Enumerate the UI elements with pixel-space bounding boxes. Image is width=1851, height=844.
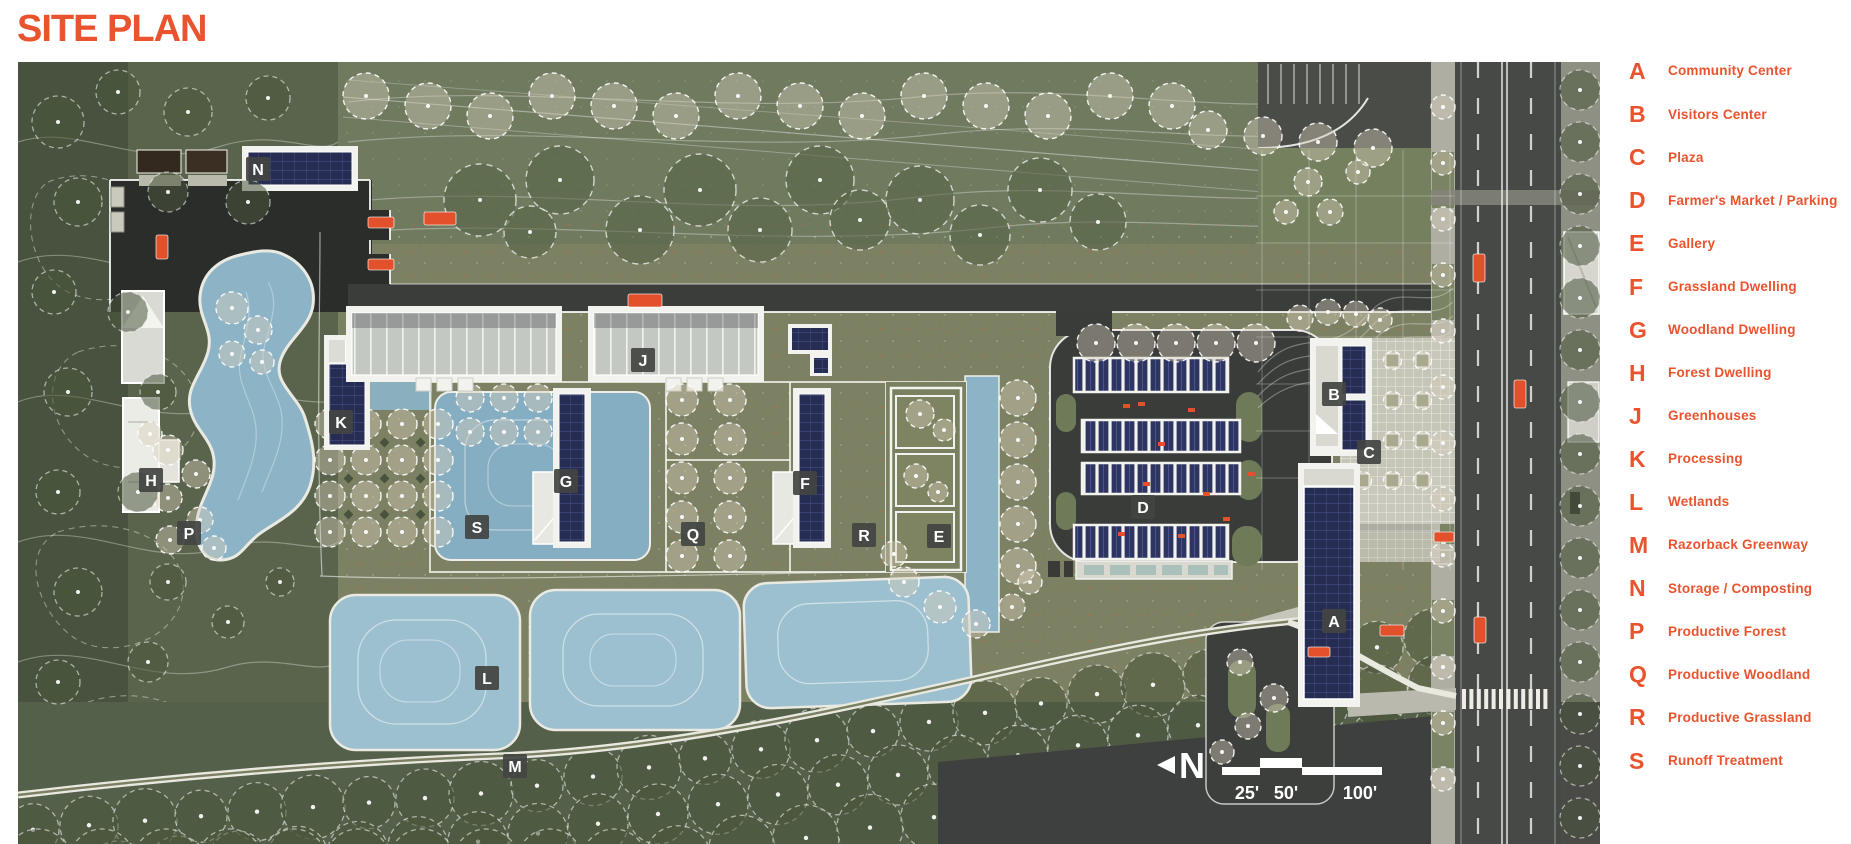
compost-bin: [137, 150, 181, 173]
svg-text:A: A: [1328, 614, 1340, 631]
legend-item-E: EGallery: [1629, 222, 1847, 265]
legend-item-S: SRunoff Treatment: [1629, 740, 1847, 783]
legend-key: Q: [1629, 661, 1668, 688]
compost-bin: [186, 150, 227, 173]
legend-key: K: [1629, 446, 1668, 473]
legend-item-A: ACommunity Center: [1629, 50, 1847, 93]
svg-text:Q: Q: [687, 527, 699, 544]
scale-bar-segment: [1302, 767, 1382, 775]
legend-key: P: [1629, 618, 1668, 645]
legend-item-K: KProcessing: [1629, 438, 1847, 481]
car: [1474, 617, 1486, 643]
legend-label: Storage / Composting: [1668, 582, 1812, 596]
svg-text:B: B: [1328, 387, 1340, 404]
car: [424, 212, 456, 225]
svg-text:P: P: [184, 526, 195, 543]
car: [1473, 254, 1485, 282]
legend-label: Woodland Dwelling: [1668, 323, 1796, 337]
legend-item-B: BVisitors Center: [1629, 93, 1847, 136]
car: [1514, 380, 1526, 408]
legend-item-N: NStorage / Composting: [1629, 567, 1847, 610]
map-label-E: E: [927, 524, 951, 548]
map-label-F: F: [793, 471, 817, 495]
compost-pad: [188, 175, 227, 186]
map-label-D: D: [1131, 495, 1155, 519]
legend-item-Q: QProductive Woodland: [1629, 653, 1847, 696]
map-label-P: P: [177, 521, 201, 545]
legend-item-M: MRazorback Greenway: [1629, 524, 1847, 567]
legend-label: Productive Woodland: [1668, 668, 1810, 682]
scale-bar-segment: [1222, 767, 1260, 775]
legend-item-L: LWetlands: [1629, 481, 1847, 524]
map-label-H: H: [139, 468, 163, 492]
scale-label: 100': [1343, 783, 1377, 803]
svg-text:F: F: [800, 476, 810, 493]
svg-text:H: H: [145, 473, 157, 490]
svg-text:N: N: [252, 162, 264, 179]
map-label-R: R: [852, 523, 876, 547]
map-label-S: S: [465, 515, 489, 539]
scale-label: 25': [1235, 783, 1259, 803]
svg-text:S: S: [472, 520, 483, 537]
legend-label: Plaza: [1668, 151, 1704, 165]
map-label-B: B: [1322, 382, 1346, 406]
legend-key: C: [1629, 144, 1668, 171]
page-title: SITE PLAN: [17, 8, 206, 51]
legend-key: M: [1629, 532, 1668, 559]
legend-item-C: CPlaza: [1629, 136, 1847, 179]
site-plan-map: NKHPJSGQFREDBCALM N25'50'100': [18, 62, 1600, 844]
legend-label: Productive Grassland: [1668, 711, 1812, 725]
car: [1434, 532, 1454, 542]
car: [368, 259, 394, 270]
car: [1380, 625, 1404, 636]
legend-key: L: [1629, 489, 1668, 516]
legend-label: Grassland Dwelling: [1668, 280, 1797, 294]
north-label: N: [1179, 745, 1205, 786]
car: [628, 294, 662, 307]
legend-item-D: DFarmer's Market / Parking: [1629, 179, 1847, 222]
legend-item-G: GWoodland Dwelling: [1629, 309, 1847, 352]
shed: [111, 187, 124, 207]
legend-label: Visitors Center: [1668, 108, 1767, 122]
legend-key: E: [1629, 230, 1668, 257]
svg-text:C: C: [1363, 445, 1375, 462]
legend: ACommunity CenterBVisitors CenterCPlazaD…: [1629, 50, 1847, 783]
car: [156, 235, 168, 259]
map-label-K: K: [329, 410, 353, 434]
legend-item-H: HForest Dwelling: [1629, 352, 1847, 395]
shed: [111, 212, 124, 232]
legend-key: B: [1629, 101, 1668, 128]
legend-key: H: [1629, 360, 1668, 387]
legend-key: J: [1629, 403, 1668, 430]
legend-key: F: [1629, 274, 1668, 301]
legend-label: Greenhouses: [1668, 409, 1756, 423]
site-map-svg: NKHPJSGQFREDBCALM N25'50'100': [18, 62, 1600, 844]
legend-label: Razorback Greenway: [1668, 538, 1808, 552]
svg-text:D: D: [1137, 500, 1149, 517]
legend-label: Productive Forest: [1668, 625, 1786, 639]
legend-label: Wetlands: [1668, 495, 1729, 509]
legend-label: Forest Dwelling: [1668, 366, 1772, 380]
map-label-C: C: [1357, 440, 1381, 464]
car: [368, 217, 394, 228]
svg-text:R: R: [858, 528, 870, 545]
legend-label: Community Center: [1668, 64, 1792, 78]
legend-label: Gallery: [1668, 237, 1715, 251]
legend-item-J: JGreenhouses: [1629, 395, 1847, 438]
svg-text:J: J: [639, 353, 648, 370]
svg-text:L: L: [482, 671, 492, 688]
legend-key: S: [1629, 748, 1668, 775]
map-label-N: N: [246, 157, 270, 181]
map-label-M: M: [503, 754, 527, 778]
building-greenhouse-1: [346, 306, 562, 391]
legend-label: Runoff Treatment: [1668, 754, 1783, 768]
legend-item-F: FGrassland Dwelling: [1629, 265, 1847, 308]
map-label-G: G: [554, 469, 578, 493]
legend-item-P: PProductive Forest: [1629, 610, 1847, 653]
svg-text:G: G: [560, 474, 572, 491]
canal-east: [965, 376, 999, 632]
svg-text:M: M: [508, 759, 521, 776]
car: [1308, 647, 1330, 657]
site-plan-page: SITE PLAN: [0, 0, 1851, 844]
scale-label: 50': [1274, 783, 1298, 803]
map-label-J: J: [631, 348, 655, 372]
legend-item-R: RProductive Grassland: [1629, 696, 1847, 739]
map-label-A: A: [1322, 609, 1346, 633]
svg-text:E: E: [934, 529, 945, 546]
scale-bar-segment: [1260, 758, 1302, 768]
legend-key: D: [1629, 187, 1668, 214]
legend-label: Farmer's Market / Parking: [1668, 194, 1838, 208]
legend-key: R: [1629, 704, 1668, 731]
building-a: [1298, 463, 1360, 707]
building-greenhouse-2: [588, 306, 764, 391]
legend-label: Processing: [1668, 452, 1743, 466]
wetland-cell-2: [530, 590, 740, 730]
legend-key: A: [1629, 58, 1668, 85]
map-label-Q: Q: [681, 522, 705, 546]
map-label-L: L: [475, 666, 499, 690]
legend-key: G: [1629, 317, 1668, 344]
svg-text:K: K: [335, 415, 347, 432]
legend-key: N: [1629, 575, 1668, 602]
